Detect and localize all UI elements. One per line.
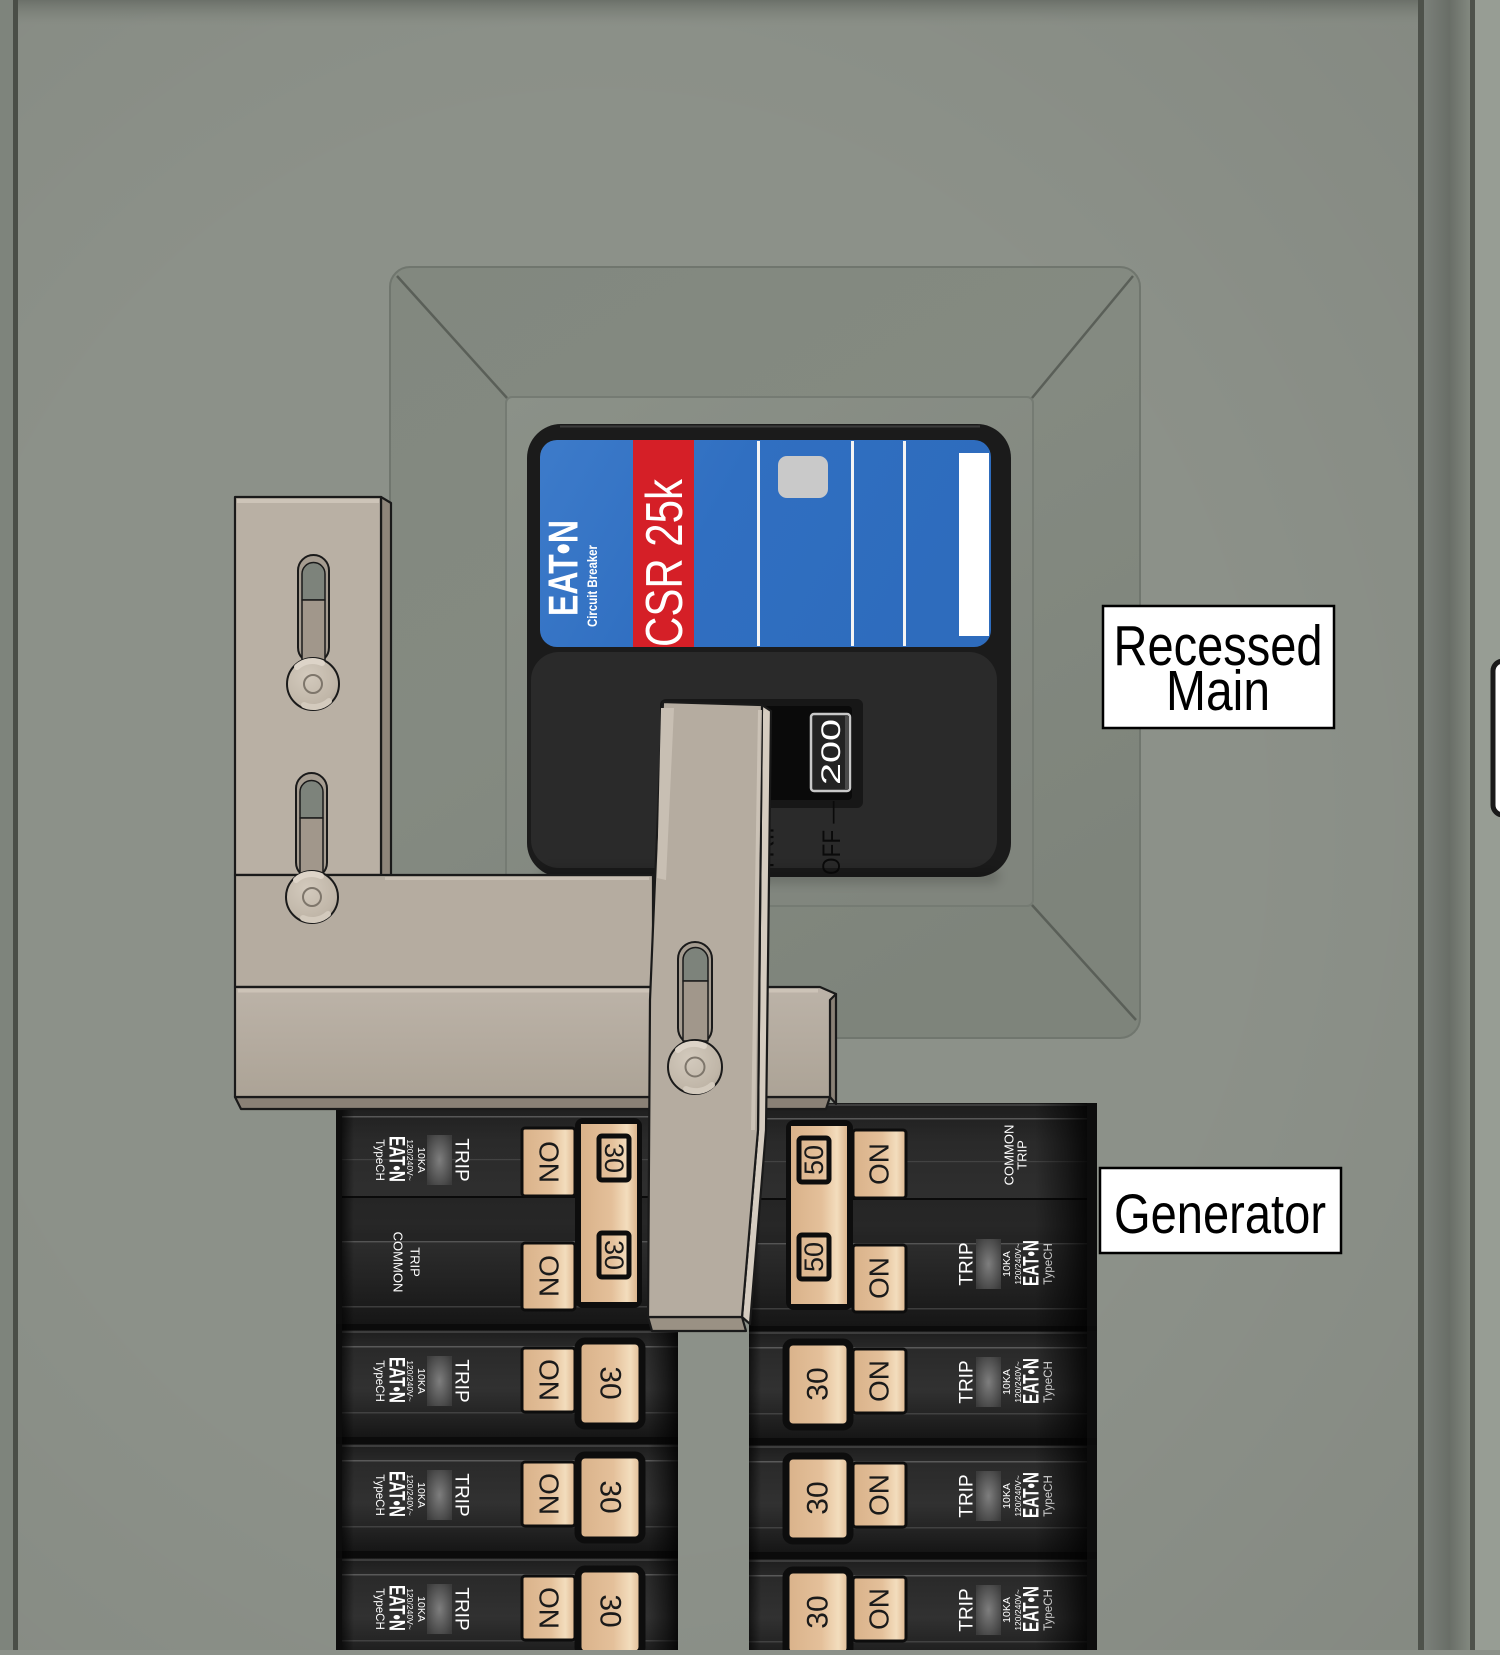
svg-text:TRIP: TRIP: [1015, 1140, 1030, 1170]
svg-text:10KA: 10KA: [1001, 1251, 1013, 1277]
svg-text:50: 50: [799, 1145, 829, 1175]
svg-text:TRIP: TRIP: [451, 1359, 472, 1402]
svg-text:EAT•N: EAT•N: [540, 520, 587, 616]
svg-text:TRIP: TRIP: [408, 1247, 423, 1277]
svg-text:30: 30: [594, 1366, 627, 1399]
svg-text:Generator: Generator: [1114, 1182, 1326, 1245]
svg-text:10KA: 10KA: [415, 1147, 427, 1173]
svg-text:200: 200: [816, 719, 846, 785]
svg-text:30: 30: [599, 1240, 629, 1270]
svg-text:Main: Main: [1166, 659, 1270, 723]
svg-text:30: 30: [802, 1367, 835, 1400]
svg-text:50: 50: [799, 1242, 829, 1272]
svg-text:ON: ON: [534, 1359, 565, 1401]
svg-text:ON: ON: [864, 1143, 895, 1185]
svg-text:10KA: 10KA: [1001, 1369, 1013, 1395]
svg-text:30: 30: [599, 1143, 629, 1173]
svg-text:120/240V~: 120/240V~: [405, 1360, 415, 1401]
svg-text:COMMON: COMMON: [391, 1232, 406, 1293]
svg-text:ON: ON: [864, 1360, 895, 1402]
svg-text:TRIP: TRIP: [957, 1242, 978, 1285]
svg-text:Circuit Breaker: Circuit Breaker: [584, 545, 600, 627]
svg-text:OFF —: OFF —: [818, 801, 846, 875]
svg-text:ON: ON: [534, 1141, 565, 1183]
svg-text:TypeCH: TypeCH: [373, 1139, 385, 1181]
svg-text:10KA: 10KA: [415, 1368, 427, 1394]
svg-text:TypeCH: TypeCH: [373, 1360, 385, 1402]
svg-text:CSR 25k: CSR 25k: [636, 478, 694, 647]
svg-text:120/240V~: 120/240V~: [405, 1139, 415, 1180]
svg-text:ON: ON: [864, 1257, 895, 1299]
svg-text:ON: ON: [534, 1255, 565, 1297]
svg-text:TRIP: TRIP: [451, 1138, 472, 1181]
svg-text:TRIP: TRIP: [957, 1360, 978, 1403]
